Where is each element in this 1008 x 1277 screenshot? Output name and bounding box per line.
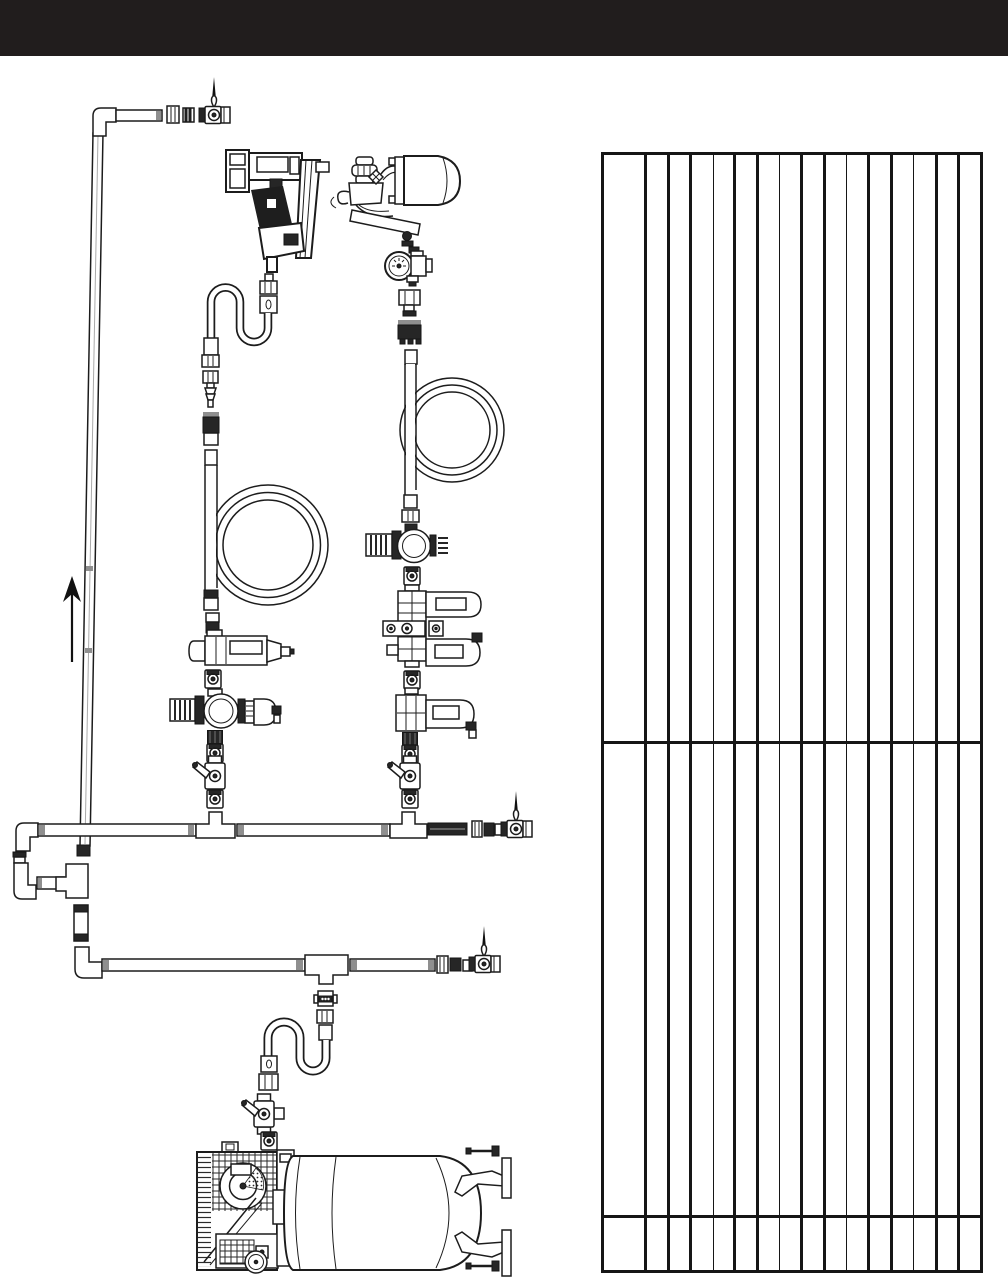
mounting-screw-bottom xyxy=(466,1261,499,1271)
table-column-line xyxy=(733,155,736,1270)
branch-tee-right xyxy=(390,812,427,838)
drop-leg-tee xyxy=(13,852,88,941)
table-column-line xyxy=(779,155,781,1270)
shutoff-ball-valve-top xyxy=(199,77,230,124)
table-column-line xyxy=(756,155,758,1270)
branch-tee-left xyxy=(196,812,235,838)
paint-spray-gun xyxy=(331,156,460,246)
table-row-line xyxy=(604,741,980,744)
page-header-bar xyxy=(0,0,1008,56)
quick-coupler xyxy=(404,567,420,585)
recoil-hose-left xyxy=(204,465,328,610)
air-compressor xyxy=(197,1142,511,1276)
branch-ball-valve-right xyxy=(388,733,421,809)
end-ball-valve-secondary xyxy=(469,926,500,973)
quick-coupler-dark xyxy=(203,412,219,465)
table-column-line xyxy=(867,155,870,1270)
mounting-screw-top xyxy=(466,1146,499,1156)
recoil-hose-right xyxy=(400,364,504,533)
table-column-line xyxy=(689,155,691,1270)
regulator-with-gauge-right xyxy=(366,530,448,563)
gooseneck-hose xyxy=(259,991,337,1090)
whip-hose xyxy=(202,274,277,367)
top-branch-pipe xyxy=(93,106,194,136)
table-column-line xyxy=(935,155,937,1270)
manual-page xyxy=(0,0,1008,1277)
secondary-tee xyxy=(305,955,348,984)
table-column-line xyxy=(846,155,848,1270)
table-column-line xyxy=(713,155,714,1270)
air-system-diagram xyxy=(0,57,560,1277)
table-row-line xyxy=(604,1215,980,1219)
table-column-line xyxy=(644,155,647,1270)
tank-drain-ball-valve xyxy=(242,1094,285,1150)
end-ball-valve-main xyxy=(501,791,532,838)
piggyback-filter-lubricator xyxy=(383,585,482,667)
compressor-tank xyxy=(284,1156,481,1270)
table-column-line xyxy=(957,155,959,1270)
framing-nail-gun xyxy=(226,150,329,272)
right-chain-fittings-top xyxy=(398,290,421,364)
table-column-line xyxy=(913,155,914,1270)
table-column-line xyxy=(800,155,803,1270)
quick-coupler xyxy=(404,671,420,689)
inline-filter xyxy=(189,613,294,665)
air-plug-fitting xyxy=(203,371,218,407)
table-column-line xyxy=(890,155,892,1270)
regulator-with-gauge-left xyxy=(170,689,281,728)
spray-gun-regulator-gauge xyxy=(385,247,432,286)
quick-coupler xyxy=(205,670,221,688)
inline-lubricator xyxy=(396,688,476,738)
parts-table xyxy=(601,152,983,1273)
branch-ball-valve-left xyxy=(193,731,226,809)
table-column-line xyxy=(823,155,825,1270)
secondary-header-pipe xyxy=(75,947,472,984)
riser-pipe xyxy=(77,133,103,856)
table-column-line xyxy=(667,155,669,1270)
flow-direction-arrow xyxy=(63,576,81,662)
